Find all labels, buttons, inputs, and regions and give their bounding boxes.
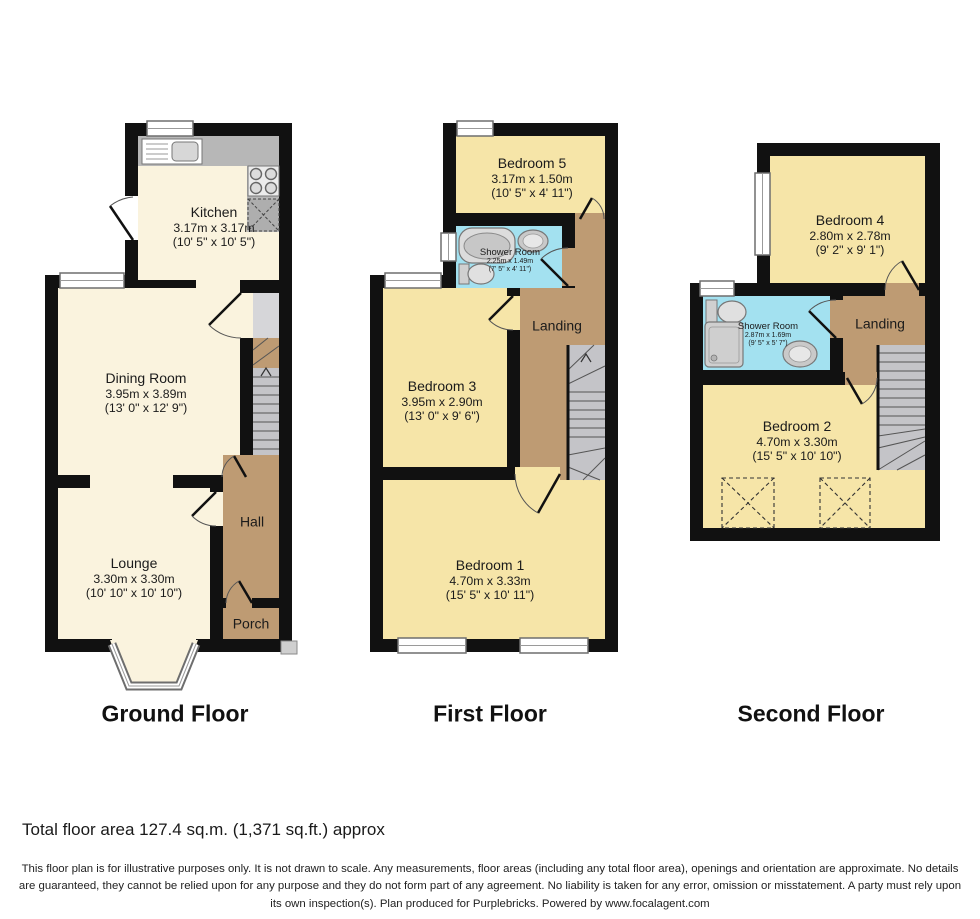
room-imperial: (10' 5" x 4' 11") [491,186,573,201]
bedroom1-label: Bedroom 1 4.70m x 3.33m (15' 5" x 10' 11… [446,557,534,603]
room-name: Shower Room [738,321,798,332]
second-floor-title: Second Floor [738,701,885,728]
room-name: Porch [233,616,270,633]
total-floor-area-text: Total floor area 127.4 sq.m. (1,371 sq.f… [22,820,385,840]
room-name: Shower Room [480,247,540,258]
room-name: Landing [532,318,582,335]
room-metric: 3.17m x 1.50m [491,172,573,187]
second-floor-plan [690,143,940,541]
room-metric: 2.25m x 1.49m [480,258,540,266]
bay-window [110,640,198,688]
room-name: Dining Room [105,370,187,387]
room-name: Lounge [86,555,182,572]
hall-label: Hall [240,514,264,531]
landing2-label: Landing [855,316,905,333]
bedroom2-label: Bedroom 2 4.70m x 3.30m (15' 5" x 10' 10… [752,418,841,464]
room-imperial: (10' 5" x 10' 5") [173,235,255,250]
room-name: Bedroom 5 [491,155,573,172]
room-metric: 3.95m x 3.89m [105,387,187,402]
landing1-label: Landing [532,318,582,335]
room-name: Bedroom 3 [401,378,482,395]
lounge-label: Lounge 3.30m x 3.30m (10' 10" x 10' 10") [86,555,182,601]
room-name: Hall [240,514,264,531]
room-name: Bedroom 2 [752,418,841,435]
room-imperial: (9' 2" x 9' 1") [809,243,890,258]
bedroom3-label: Bedroom 3 3.95m x 2.90m (13' 0" x 9' 6") [401,378,482,424]
first-floor-title: First Floor [433,701,547,728]
second-stairs [878,345,925,470]
room-metric: 3.95m x 2.90m [401,395,482,410]
room-name: Bedroom 4 [809,212,890,229]
bedroom5-label: Bedroom 5 3.17m x 1.50m (10' 5" x 4' 11"… [491,155,573,201]
kitchen-label: Kitchen 3.17m x 3.17m (10' 5" x 10' 5") [173,204,255,250]
room-metric: 4.70m x 3.33m [446,574,534,589]
room-metric: 3.17m x 3.17m [173,221,255,236]
bedroom4-label: Bedroom 4 2.80m x 2.78m (9' 2" x 9' 1") [809,212,890,258]
floorplan-page: Kitchen 3.17m x 3.17m (10' 5" x 10' 5") … [0,0,980,919]
room-imperial: (13' 0" x 9' 6") [401,409,482,424]
room-imperial: (15' 5" x 10' 10") [752,449,841,464]
first-stairs [568,345,605,480]
room-name: Kitchen [173,204,255,221]
room-name: Landing [855,316,905,333]
room-metric: 2.87m x 1.69m [738,332,798,340]
room-name: Bedroom 1 [446,557,534,574]
disclaimer-text: This floor plan is for illustrative purp… [15,861,965,913]
sink-icon [142,139,202,164]
room-imperial: (10' 10" x 10' 10") [86,586,182,601]
room-metric: 3.30m x 3.30m [86,572,182,587]
room-imperial: (7' 5" x 4' 11") [480,267,540,275]
stove-icon [248,166,279,196]
understairs-cupboard [253,293,279,338]
room-metric: 2.80m x 2.78m [809,229,890,244]
room-imperial: (9' 5" x 5' 7") [738,341,798,349]
ground-floor-title: Ground Floor [102,701,249,728]
room-imperial: (13' 0" x 12' 9") [105,401,187,416]
room-metric: 4.70m x 3.30m [752,435,841,450]
porch-label: Porch [233,616,270,633]
shower-room1-label: Shower Room 2.25m x 1.49m (7' 5" x 4' 11… [480,247,540,275]
shower-room2-label: Shower Room 2.87m x 1.69m (9' 5" x 5' 7"… [738,321,798,349]
room-imperial: (15' 5" x 10' 11") [446,588,534,603]
dining-room-label: Dining Room 3.95m x 3.89m (13' 0" x 12' … [105,370,187,416]
